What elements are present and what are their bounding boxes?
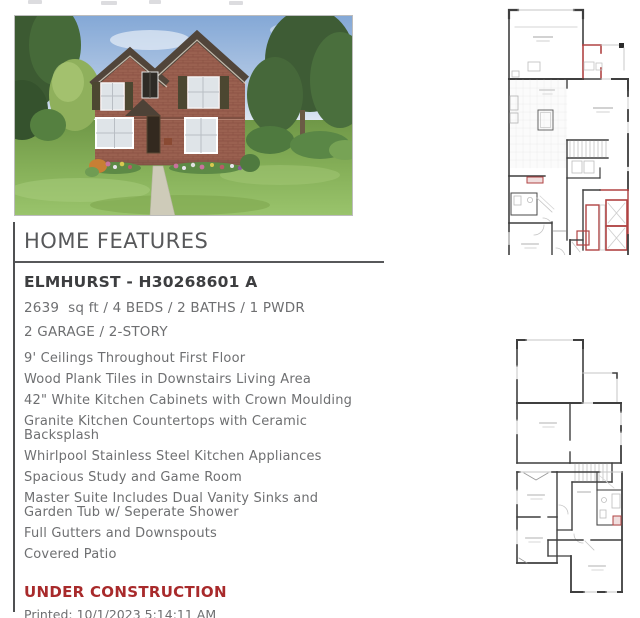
feature-item: Spacious Study and Game Room bbox=[24, 471, 369, 485]
upper-room bbox=[517, 340, 583, 403]
bath-2 bbox=[597, 472, 622, 525]
mid-walls bbox=[517, 403, 621, 463]
bedroom-2 bbox=[517, 472, 557, 517]
feature-item: 9' Ceilings Throughout First Floor bbox=[24, 352, 369, 366]
family-room bbox=[567, 79, 628, 248]
feature-item: Granite Kitchen Countertops with Ceramic… bbox=[24, 415, 369, 443]
first-floor-plan bbox=[503, 5, 639, 255]
feature-item: Full Gutters and Downspouts bbox=[24, 527, 369, 541]
feature-list: 9' Ceilings Throughout First Floor Wood … bbox=[24, 352, 369, 562]
feature-item: Whirlpool Stainless Steel Kitchen Applia… bbox=[24, 450, 369, 464]
flyer-page: HOME FEATURES ELMHURST - H30268601 A 263… bbox=[0, 0, 640, 618]
feature-item: Covered Patio bbox=[24, 548, 369, 562]
spec-line-1: 2639 sq ft / 4 BEDS / 2 BATHS / 1 PWDR bbox=[24, 300, 383, 316]
cropped-text-remnant bbox=[229, 1, 243, 5]
section-title: HOME FEATURES bbox=[24, 222, 383, 261]
feature-item: 42" White Kitchen Cabinets with Crown Mo… bbox=[24, 394, 369, 408]
garage bbox=[509, 10, 583, 79]
house-rendering-image bbox=[15, 16, 352, 215]
master-bath bbox=[577, 190, 628, 250]
feature-item: Master Suite Includes Dual Vanity Sinks … bbox=[24, 492, 369, 520]
cropped-text-remnant bbox=[101, 1, 117, 5]
study bbox=[509, 223, 552, 255]
printed-timestamp: Printed: 10/1/2023 5:14:11 AM bbox=[24, 607, 383, 618]
stairs bbox=[567, 140, 608, 178]
cropped-text-remnant bbox=[28, 0, 42, 4]
plan-name: ELMHURST - H30268601 A bbox=[24, 273, 383, 291]
entry-porch bbox=[583, 43, 628, 90]
upper-right-area bbox=[583, 373, 617, 403]
hall bbox=[552, 178, 567, 255]
title-rule bbox=[15, 261, 384, 263]
feature-item: Wood Plank Tiles in Downstairs Living Ar… bbox=[24, 373, 369, 387]
house-photo bbox=[14, 15, 353, 216]
construction-status: UNDER CONSTRUCTION bbox=[24, 583, 383, 601]
cropped-text-remnant bbox=[149, 0, 161, 4]
spec-line-2: 2 GARAGE / 2-STORY bbox=[24, 324, 383, 340]
bedroom-4 bbox=[548, 540, 622, 592]
utility-room bbox=[567, 161, 600, 178]
home-features-panel: HOME FEATURES ELMHURST - H30268601 A 263… bbox=[13, 222, 383, 612]
upper-hall bbox=[557, 482, 590, 543]
second-floor-plan bbox=[500, 337, 640, 595]
kitchen bbox=[509, 79, 567, 176]
powder-and-closets bbox=[509, 176, 554, 227]
